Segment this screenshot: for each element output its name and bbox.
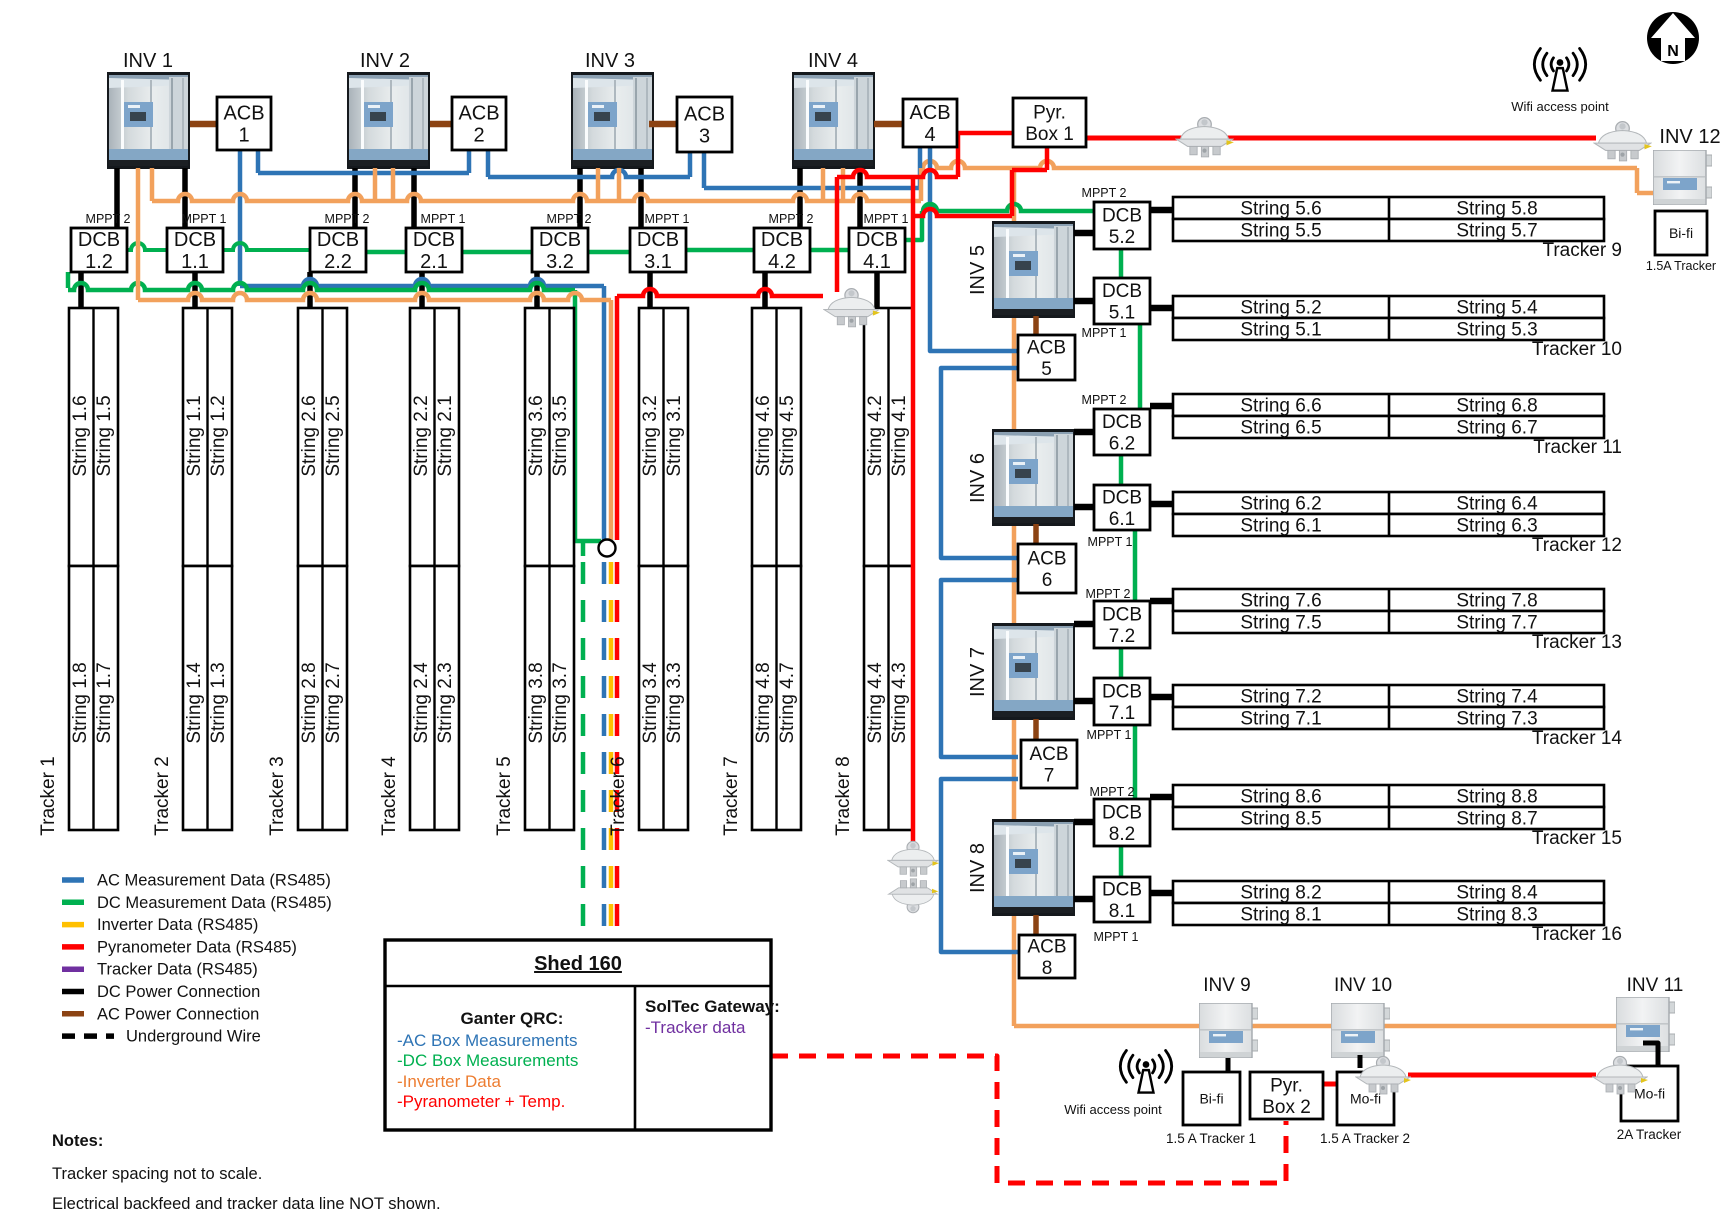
svg-text:Electrical backfeed and tracke: Electrical backfeed and tracker data lin…: [52, 1195, 441, 1213]
svg-text:DC Measurement Data (RS485): DC Measurement Data (RS485): [97, 894, 332, 912]
svg-text:String 4.2: String 4.2: [865, 395, 886, 476]
svg-text:String 2.2: String 2.2: [411, 395, 432, 476]
svg-text:ACB: ACB: [909, 102, 950, 124]
svg-text:String 7.2: String 7.2: [1240, 687, 1321, 708]
svg-text:Pyranometer Data (RS485): Pyranometer Data (RS485): [97, 938, 297, 956]
svg-text:MPPT 2: MPPT 2: [769, 212, 814, 226]
svg-text:INV 2: INV 2: [360, 50, 410, 72]
svg-text:INV 6: INV 6: [967, 453, 989, 503]
svg-text:MPPT 2: MPPT 2: [325, 212, 370, 226]
svg-text:Tracker 1: Tracker 1: [38, 756, 59, 836]
svg-text:String 8.1: String 8.1: [1240, 905, 1321, 926]
svg-text:-Tracker data: -Tracker data: [645, 1018, 746, 1037]
svg-text:String 5.2: String 5.2: [1240, 298, 1321, 319]
svg-text:String 2.6: String 2.6: [299, 395, 320, 476]
svg-text:3: 3: [699, 126, 710, 148]
svg-text:String 2.1: String 2.1: [435, 395, 456, 476]
svg-text:-Pyranometer + Temp.: -Pyranometer + Temp.: [397, 1092, 565, 1111]
svg-text:String 5.5: String 5.5: [1240, 221, 1321, 242]
svg-text:String 3.2: String 3.2: [640, 395, 661, 476]
svg-text:DCB: DCB: [1102, 206, 1142, 227]
svg-text:Pyr.: Pyr.: [1270, 1076, 1303, 1097]
svg-text:INV 4: INV 4: [808, 50, 858, 72]
svg-text:String 3.8: String 3.8: [526, 662, 547, 743]
svg-text:MPPT 1: MPPT 1: [1088, 535, 1133, 549]
svg-text:MPPT 1: MPPT 1: [421, 212, 466, 226]
svg-text:Tracker 11: Tracker 11: [1533, 437, 1622, 458]
svg-text:String 2.7: String 2.7: [323, 662, 344, 743]
svg-text:N: N: [1667, 43, 1679, 60]
svg-text:INV 3: INV 3: [585, 50, 635, 72]
svg-text:ACB: ACB: [684, 103, 725, 125]
svg-text:MPPT 1: MPPT 1: [864, 212, 909, 226]
svg-text:Tracker 14: Tracker 14: [1532, 728, 1623, 749]
svg-text:Mo-fi: Mo-fi: [1634, 1085, 1665, 1101]
svg-text:MPPT 2: MPPT 2: [1082, 186, 1127, 200]
svg-text:Wifi access point: Wifi access point: [1511, 99, 1609, 114]
svg-text:Tracker spacing not to scale.: Tracker spacing not to scale.: [52, 1165, 262, 1183]
svg-text:-AC Box Measurements: -AC Box Measurements: [397, 1031, 577, 1050]
svg-text:DCB: DCB: [539, 229, 581, 251]
svg-text:DCB: DCB: [1102, 281, 1142, 302]
svg-text:String 3.5: String 3.5: [550, 395, 571, 476]
svg-text:6.1: 6.1: [1109, 509, 1135, 530]
svg-text:String 1.7: String 1.7: [94, 662, 115, 743]
svg-text:String 2.5: String 2.5: [323, 395, 344, 476]
svg-text:String 4.5: String 4.5: [777, 395, 798, 476]
svg-text:4: 4: [924, 124, 935, 146]
svg-text:MPPT 2: MPPT 2: [1086, 587, 1131, 601]
svg-text:5: 5: [1041, 359, 1052, 380]
svg-text:DCB: DCB: [1102, 803, 1142, 824]
svg-text:ACB: ACB: [1027, 338, 1066, 359]
svg-text:Box 1: Box 1: [1025, 124, 1074, 145]
svg-text:String 6.6: String 6.6: [1240, 396, 1321, 417]
svg-text:5.1: 5.1: [1109, 302, 1135, 323]
svg-text:DCB: DCB: [637, 229, 679, 251]
svg-text:MPPT 1: MPPT 1: [645, 212, 690, 226]
svg-text:Tracker 6: Tracker 6: [608, 756, 629, 836]
svg-text:6.2: 6.2: [1109, 433, 1135, 454]
svg-text:String 5.7: String 5.7: [1456, 221, 1537, 242]
svg-text:INV 1: INV 1: [123, 50, 173, 72]
svg-text:DCB: DCB: [1102, 880, 1142, 901]
svg-text:1.2: 1.2: [85, 251, 113, 273]
svg-text:SolTec Gateway:: SolTec Gateway:: [645, 997, 780, 1016]
svg-text:Bi-fi: Bi-fi: [1199, 1090, 1223, 1106]
svg-text:String 1.8: String 1.8: [70, 662, 91, 743]
svg-text:String 2.8: String 2.8: [299, 662, 320, 743]
svg-text:1.5 A Tracker 1: 1.5 A Tracker 1: [1166, 1131, 1256, 1146]
svg-text:String 7.6: String 7.6: [1240, 591, 1321, 612]
svg-text:String 1.4: String 1.4: [184, 662, 205, 744]
svg-text:-Inverter Data: -Inverter Data: [397, 1072, 501, 1091]
svg-text:Tracker 13: Tracker 13: [1532, 632, 1622, 653]
svg-text:DCB: DCB: [856, 229, 898, 251]
svg-text:ACB: ACB: [223, 102, 264, 124]
svg-text:Bi-fi: Bi-fi: [1669, 225, 1693, 241]
svg-text:ACB: ACB: [458, 102, 499, 124]
svg-text:ACB: ACB: [1027, 937, 1066, 958]
svg-text:String 5.6: String 5.6: [1240, 199, 1321, 220]
svg-text:Notes:: Notes:: [52, 1132, 103, 1150]
svg-text:2A Tracker: 2A Tracker: [1617, 1127, 1682, 1142]
svg-text:MPPT 2: MPPT 2: [1090, 785, 1135, 799]
svg-text:DC Power Connection: DC Power Connection: [97, 983, 260, 1001]
svg-text:INV 7: INV 7: [967, 647, 989, 697]
svg-text:String 4.8: String 4.8: [753, 662, 774, 743]
svg-text:Tracker 5: Tracker 5: [494, 756, 515, 836]
svg-text:String 6.8: String 6.8: [1456, 396, 1537, 417]
svg-text:8.1: 8.1: [1109, 901, 1135, 922]
svg-text:String 4.3: String 4.3: [889, 662, 910, 743]
svg-text:7.2: 7.2: [1109, 626, 1135, 647]
svg-text:Tracker 12: Tracker 12: [1532, 535, 1622, 556]
svg-text:String 6.3: String 6.3: [1456, 516, 1537, 537]
svg-text:String 1.2: String 1.2: [208, 395, 229, 476]
svg-text:AC Power Connection: AC Power Connection: [97, 1005, 259, 1023]
svg-text:MPPT 1: MPPT 1: [1082, 326, 1127, 340]
svg-text:MPPT 2: MPPT 2: [1082, 393, 1127, 407]
svg-text:String 8.3: String 8.3: [1456, 905, 1537, 926]
svg-text:String 5.1: String 5.1: [1240, 320, 1321, 341]
svg-text:String 3.3: String 3.3: [664, 662, 685, 743]
svg-text:String 5.8: String 5.8: [1456, 199, 1537, 220]
svg-text:INV 10: INV 10: [1334, 975, 1392, 996]
svg-text:Tracker 2: Tracker 2: [152, 756, 173, 836]
svg-text:String 5.4: String 5.4: [1456, 298, 1538, 319]
svg-text:String 4.6: String 4.6: [753, 395, 774, 476]
svg-text:Inverter Data (RS485): Inverter Data (RS485): [97, 916, 258, 934]
svg-text:Pyr.: Pyr.: [1033, 103, 1066, 124]
svg-text:2.1: 2.1: [420, 251, 448, 273]
svg-text:1.5 A Tracker 2: 1.5 A Tracker 2: [1320, 1131, 1410, 1146]
svg-text:String 7.3: String 7.3: [1456, 709, 1537, 730]
svg-text:Ganter QRC:: Ganter QRC:: [461, 1009, 564, 1028]
svg-text:DCB: DCB: [413, 229, 455, 251]
svg-text:Underground Wire: Underground Wire: [126, 1028, 261, 1046]
svg-text:DCB: DCB: [1102, 605, 1142, 626]
svg-text:String 7.5: String 7.5: [1240, 613, 1321, 634]
svg-text:String 8.2: String 8.2: [1240, 883, 1321, 904]
svg-text:1.5A Tracker: 1.5A Tracker: [1646, 259, 1716, 273]
svg-text:DCB: DCB: [761, 229, 803, 251]
svg-text:String 6.1: String 6.1: [1240, 516, 1321, 537]
svg-text:MPPT 1: MPPT 1: [182, 212, 227, 226]
svg-text:INV 8: INV 8: [967, 843, 989, 893]
svg-text:ACB: ACB: [1029, 744, 1068, 765]
svg-text:String 1.5: String 1.5: [94, 395, 115, 476]
svg-text:DCB: DCB: [1102, 412, 1142, 433]
svg-text:8: 8: [1042, 958, 1053, 979]
svg-text:MPPT 1: MPPT 1: [1094, 930, 1139, 944]
svg-text:Tracker 7: Tracker 7: [721, 756, 742, 836]
svg-text:String 4.4: String 4.4: [865, 662, 886, 744]
svg-text:4.2: 4.2: [768, 251, 796, 273]
svg-text:Shed 160: Shed 160: [534, 953, 622, 975]
svg-text:String 8.4: String 8.4: [1456, 883, 1538, 904]
svg-text:String 3.1: String 3.1: [664, 395, 685, 476]
svg-text:Tracker 4: Tracker 4: [379, 756, 400, 836]
svg-text:AC Measurement Data (RS485): AC Measurement Data (RS485): [97, 872, 331, 890]
svg-text:8.2: 8.2: [1109, 824, 1135, 845]
svg-text:String 7.8: String 7.8: [1456, 591, 1537, 612]
svg-text:INV 5: INV 5: [967, 245, 989, 295]
svg-text:5.2: 5.2: [1109, 227, 1135, 248]
svg-text:1.1: 1.1: [181, 251, 209, 273]
svg-text:DCB: DCB: [174, 229, 216, 251]
svg-text:String 6.5: String 6.5: [1240, 418, 1321, 439]
svg-text:String 8.5: String 8.5: [1240, 809, 1321, 830]
svg-text:String 8.7: String 8.7: [1456, 809, 1537, 830]
svg-text:DCB: DCB: [78, 229, 120, 251]
svg-text:String 4.1: String 4.1: [889, 395, 910, 476]
svg-text:2.2: 2.2: [324, 251, 352, 273]
svg-text:INV 9: INV 9: [1203, 975, 1251, 996]
svg-text:String 2.4: String 2.4: [411, 662, 432, 744]
svg-text:String 7.4: String 7.4: [1456, 687, 1538, 708]
svg-text:String 6.7: String 6.7: [1456, 418, 1537, 439]
svg-text:String 6.4: String 6.4: [1456, 494, 1538, 515]
svg-text:Box 2: Box 2: [1262, 1097, 1311, 1118]
svg-text:DCB: DCB: [317, 229, 359, 251]
svg-text:1: 1: [238, 125, 249, 147]
svg-text:String 1.1: String 1.1: [184, 395, 205, 476]
svg-text:MPPT 1: MPPT 1: [1087, 728, 1132, 742]
svg-text:String 8.8: String 8.8: [1456, 787, 1537, 808]
svg-text:2: 2: [473, 125, 484, 147]
svg-text:INV 12: INV 12: [1659, 126, 1720, 148]
svg-text:DCB: DCB: [1102, 488, 1142, 509]
svg-text:ACB: ACB: [1027, 549, 1066, 570]
svg-text:Tracker 3: Tracker 3: [267, 756, 288, 836]
svg-text:Tracker 8: Tracker 8: [833, 756, 854, 836]
svg-text:String 5.3: String 5.3: [1456, 320, 1537, 341]
svg-text:3.2: 3.2: [546, 251, 574, 273]
svg-text:String 2.3: String 2.3: [435, 662, 456, 743]
svg-text:3.1: 3.1: [644, 251, 672, 273]
svg-text:Tracker 15: Tracker 15: [1532, 828, 1622, 849]
svg-text:String 4.7: String 4.7: [777, 662, 798, 743]
svg-text:7: 7: [1044, 765, 1055, 786]
svg-text:String 3.6: String 3.6: [526, 395, 547, 476]
svg-text:Tracker 9: Tracker 9: [1542, 240, 1622, 261]
svg-text:String 6.2: String 6.2: [1240, 494, 1321, 515]
svg-text:String 1.6: String 1.6: [70, 395, 91, 476]
svg-text:7.1: 7.1: [1109, 703, 1135, 724]
svg-text:Tracker Data (RS485): Tracker Data (RS485): [97, 961, 258, 979]
svg-text:String 1.3: String 1.3: [208, 662, 229, 743]
svg-text:INV 11: INV 11: [1627, 975, 1684, 996]
svg-text:String 7.1: String 7.1: [1240, 709, 1321, 730]
svg-text:MPPT 2: MPPT 2: [547, 212, 592, 226]
svg-text:4.1: 4.1: [863, 251, 891, 273]
svg-text:Tracker 16: Tracker 16: [1532, 924, 1622, 945]
svg-text:Wifi access point: Wifi access point: [1064, 1102, 1162, 1117]
svg-text:MPPT 2: MPPT 2: [86, 212, 131, 226]
svg-text:DCB: DCB: [1102, 682, 1142, 703]
svg-text:Tracker 10: Tracker 10: [1532, 339, 1622, 360]
svg-text:String 3.4: String 3.4: [640, 662, 661, 744]
svg-text:String 8.6: String 8.6: [1240, 787, 1321, 808]
svg-text:String 3.7: String 3.7: [550, 662, 571, 743]
svg-text:-DC Box Measurements: -DC Box Measurements: [397, 1051, 578, 1070]
svg-text:6: 6: [1042, 570, 1053, 591]
svg-text:Mo-fi: Mo-fi: [1350, 1090, 1381, 1106]
svg-text:String 7.7: String 7.7: [1456, 613, 1537, 634]
